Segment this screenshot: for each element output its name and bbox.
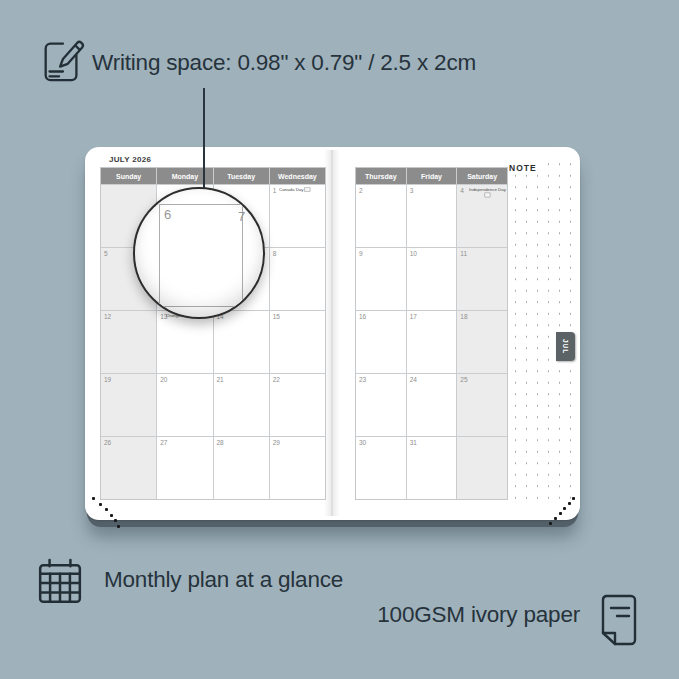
magnified-date: 6 (164, 207, 171, 222)
calendar-cell: 19 (101, 374, 156, 436)
monthly-plan-label: Monthly plan at a glance (104, 567, 343, 593)
paper-label: 100GSM ivory paper (377, 602, 580, 628)
day-header: Thursday (356, 168, 406, 184)
month-title: JULY 2026 (109, 155, 151, 164)
writing-space-label: Writing space: 0.98" x 0.79" / 2.5 x 2cm (92, 50, 476, 76)
date-number: 11 (457, 248, 507, 257)
date-number: 30 (356, 437, 406, 446)
calendar-cell: 10 (407, 248, 457, 310)
corner-stitch-dot (568, 502, 571, 505)
date-number: 25 (457, 374, 507, 383)
calendar-cell: 27 (157, 437, 212, 499)
note-label: NOTE (509, 163, 540, 174)
paper-sheet-icon (595, 593, 639, 647)
calendar-cell: 14 (214, 311, 269, 373)
calendar-cell: 1Canada Day (270, 185, 325, 247)
calendar-cell (457, 437, 507, 499)
day-header: Saturday (457, 168, 507, 184)
date-number: 22 (270, 374, 325, 383)
date-number: 26 (101, 437, 156, 446)
calendar-cell: 25 (457, 374, 507, 436)
day-header: Sunday (101, 168, 156, 184)
date-number: 16 (356, 311, 406, 320)
calendar-cell: 23 (356, 374, 406, 436)
calendar-cell: 31 (407, 437, 457, 499)
calendar-cell: 3 (407, 185, 457, 247)
corner-stitch-dot (110, 514, 113, 517)
corner-stitch-dot (554, 517, 557, 520)
calendar-cell: 28 (214, 437, 269, 499)
magnifier-circle: 6 7 (133, 187, 265, 319)
calendar-cell: 12 (101, 311, 156, 373)
date-number: 12 (101, 311, 156, 320)
month-tab: JUL (556, 332, 575, 361)
calendar-cell: 4Independence Day (457, 185, 507, 247)
date-number: 9 (356, 248, 406, 257)
date-number: 27 (157, 437, 212, 446)
corner-stitch-dot (114, 519, 117, 522)
callout-leader-line (203, 88, 205, 198)
calendar-cell: 30 (356, 437, 406, 499)
calendar-cell: 15 (270, 311, 325, 373)
date-number: 29 (270, 437, 325, 446)
calendar-cell: 29 (270, 437, 325, 499)
calendar-cell: 22 (270, 374, 325, 436)
corner-stitch-dot (117, 525, 120, 528)
calendar-cell: 2 (356, 185, 406, 247)
date-number: 18 (457, 311, 507, 320)
date-number: 10 (407, 248, 457, 257)
holiday-text: Independence Day (469, 187, 506, 192)
date-number: 8 (270, 248, 325, 257)
date-number: 24 (407, 374, 457, 383)
calendar-right-page: ThursdayFridaySaturday234Independence Da… (355, 167, 508, 500)
day-header: Tuesday (214, 168, 269, 184)
date-number: 19 (101, 374, 156, 383)
date-number: 23 (356, 374, 406, 383)
calendar-cell: 20 (157, 374, 212, 436)
corner-stitch-dot (105, 508, 108, 511)
calendar-cell: 24 (407, 374, 457, 436)
writing-space-outline (159, 204, 243, 307)
holiday-label: Canada Day (279, 187, 311, 192)
calendar-grid-icon (36, 558, 84, 606)
magnified-date: 7 (238, 209, 245, 224)
calendar-cell: 17 (407, 311, 457, 373)
date-number: 15 (270, 311, 325, 320)
book-spine (324, 150, 340, 516)
corner-stitch-dot (99, 503, 102, 506)
date-number: 2 (356, 185, 406, 194)
calendar-cell: 11 (457, 248, 507, 310)
calendar-cell: 13Orangemen's Day (157, 311, 212, 373)
date-number: 21 (214, 374, 269, 383)
flag-icon (485, 193, 491, 198)
calendar-cell: 26 (101, 437, 156, 499)
product-feature-image: Writing space: 0.98" x 0.79" / 2.5 x 2cm… (0, 0, 679, 679)
holiday-text: Canada Day (279, 187, 303, 192)
date-number: 17 (407, 311, 457, 320)
date-number: 20 (157, 374, 212, 383)
day-header: Friday (407, 168, 457, 184)
corner-stitch-dot (549, 522, 552, 525)
calendar-cell: 21 (214, 374, 269, 436)
corner-stitch-dot (92, 497, 95, 500)
corner-stitch-dot (559, 512, 562, 515)
calendar-cell: 16 (356, 311, 406, 373)
date-number: 28 (214, 437, 269, 446)
flag-icon (304, 187, 310, 192)
calendar-cell: 18 (457, 311, 507, 373)
corner-stitch-dot (572, 497, 575, 500)
pencil-note-icon (38, 32, 86, 86)
corner-stitch-dot (563, 507, 566, 510)
date-number: 3 (407, 185, 457, 194)
date-number: 31 (407, 437, 457, 446)
holiday-label: Independence Day (469, 187, 506, 197)
calendar-cell: 8 (270, 248, 325, 310)
day-header: Wednesday (270, 168, 325, 184)
calendar-cell: 9 (356, 248, 406, 310)
